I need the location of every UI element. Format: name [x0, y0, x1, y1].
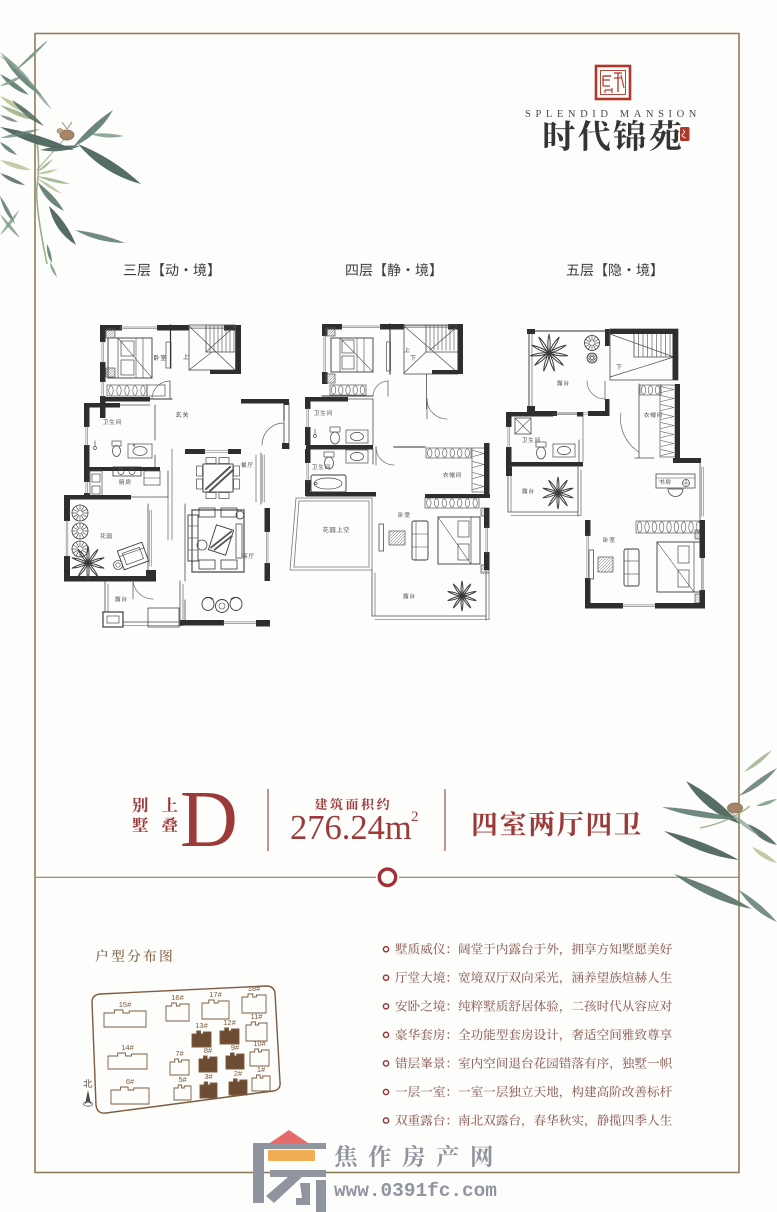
svg-text:2#: 2#: [234, 1069, 243, 1078]
svg-text:9#: 9#: [231, 1043, 240, 1052]
svg-text:6#: 6#: [126, 1077, 135, 1086]
svg-text:3#: 3#: [204, 1072, 213, 1081]
svg-text:8#: 8#: [204, 1046, 213, 1055]
svg-text:2: 2: [411, 809, 419, 825]
svg-text:7#: 7#: [175, 1049, 184, 1058]
svg-text:12#: 12#: [223, 1018, 236, 1027]
svg-text:SPLENDID MANSION: SPLENDID MANSION: [525, 109, 701, 120]
svg-text:14#: 14#: [121, 1043, 134, 1052]
svg-text:13#: 13#: [195, 1021, 208, 1030]
svg-text:www.0391fc.com: www.0391fc.com: [334, 1180, 497, 1202]
svg-text:1#: 1#: [257, 1065, 266, 1074]
svg-text:15#: 15#: [119, 1000, 132, 1009]
svg-text:16#: 16#: [171, 993, 184, 1002]
svg-text:11#: 11#: [251, 1012, 264, 1021]
svg-text:17#: 17#: [209, 990, 222, 999]
svg-text:D: D: [180, 776, 238, 864]
svg-text:276.24m: 276.24m: [290, 809, 412, 847]
svg-text:10#: 10#: [253, 1039, 266, 1048]
svg-text:18#: 18#: [248, 984, 261, 993]
svg-text:5#: 5#: [178, 1075, 187, 1084]
